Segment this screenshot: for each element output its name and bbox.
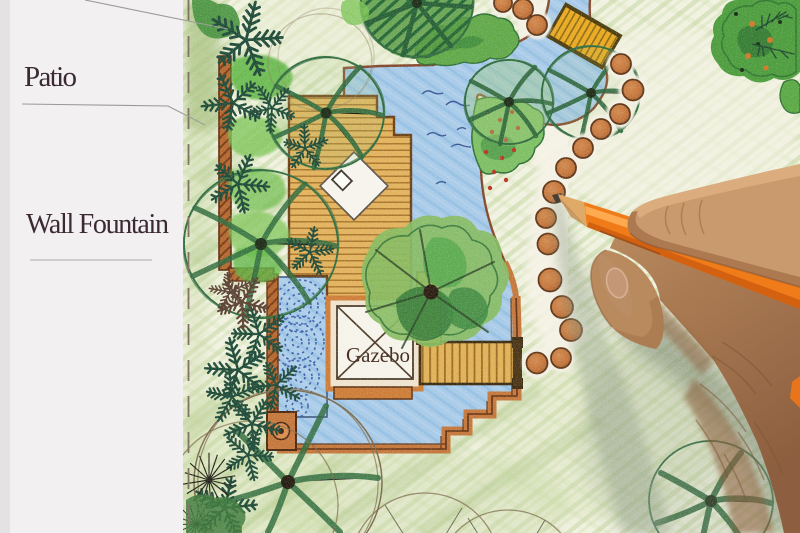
svg-text:Wall Fountain: Wall Fountain (26, 209, 169, 240)
svg-text:Patio: Patio (24, 61, 77, 93)
